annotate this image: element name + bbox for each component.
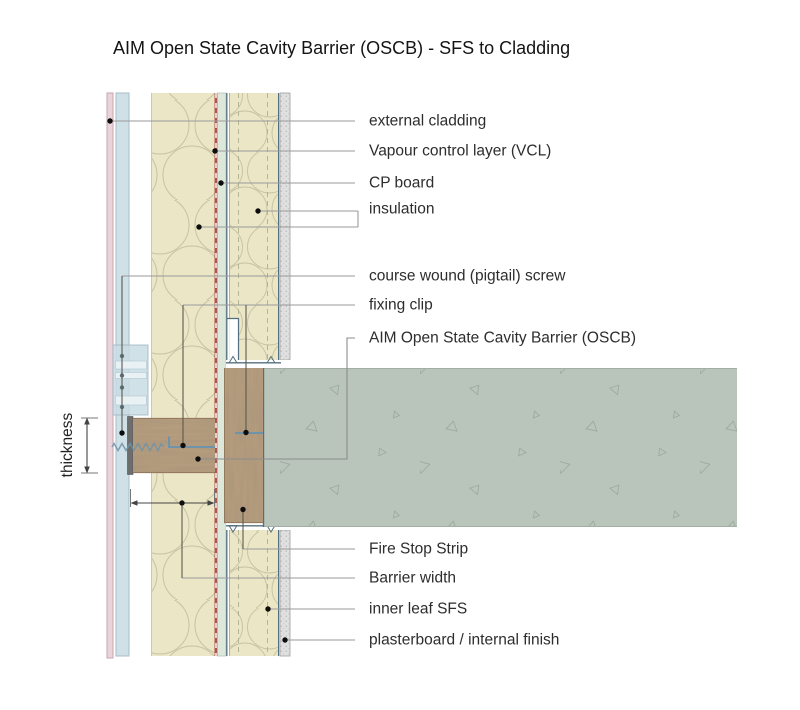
label-barrier-width: Barrier width <box>369 570 456 587</box>
label-fixing-clip: fixing clip <box>369 297 433 314</box>
thickness-label: thickness <box>59 412 76 477</box>
fire-stop-strip <box>224 368 263 523</box>
label-oscb: AIM Open State Cavity Barrier (OSCB) <box>369 330 636 347</box>
floor-slab <box>263 368 737 527</box>
sfs-track-detail <box>227 318 239 362</box>
label-pigtail-screw: course wound (pigtail) screw <box>369 268 566 285</box>
label-fire-stop-strip: Fire Stop Strip <box>369 541 468 558</box>
diagram-canvas: thickness A <box>0 0 800 710</box>
label-vcl: Vapour control layer (VCL) <box>369 143 551 160</box>
concrete-aggregate-texture <box>263 368 737 527</box>
label-plasterboard: plasterboard / internal finish <box>369 632 559 649</box>
cladding-bracket <box>113 345 148 415</box>
drawing-title: AIM Open State Cavity Barrier (OSCB) - S… <box>113 38 570 58</box>
label-insulation: insulation <box>369 201 435 218</box>
thickness-dimension: thickness <box>59 412 98 477</box>
cavity-barrier-oscb <box>128 417 216 475</box>
external-cladding-layer <box>107 93 113 658</box>
construction-detail-drawing: thickness A <box>0 0 800 710</box>
label-cp-board: CP board <box>369 175 434 192</box>
label-inner-leaf-sfs: inner leaf SFS <box>369 601 467 618</box>
label-external-cladding: external cladding <box>369 113 486 130</box>
